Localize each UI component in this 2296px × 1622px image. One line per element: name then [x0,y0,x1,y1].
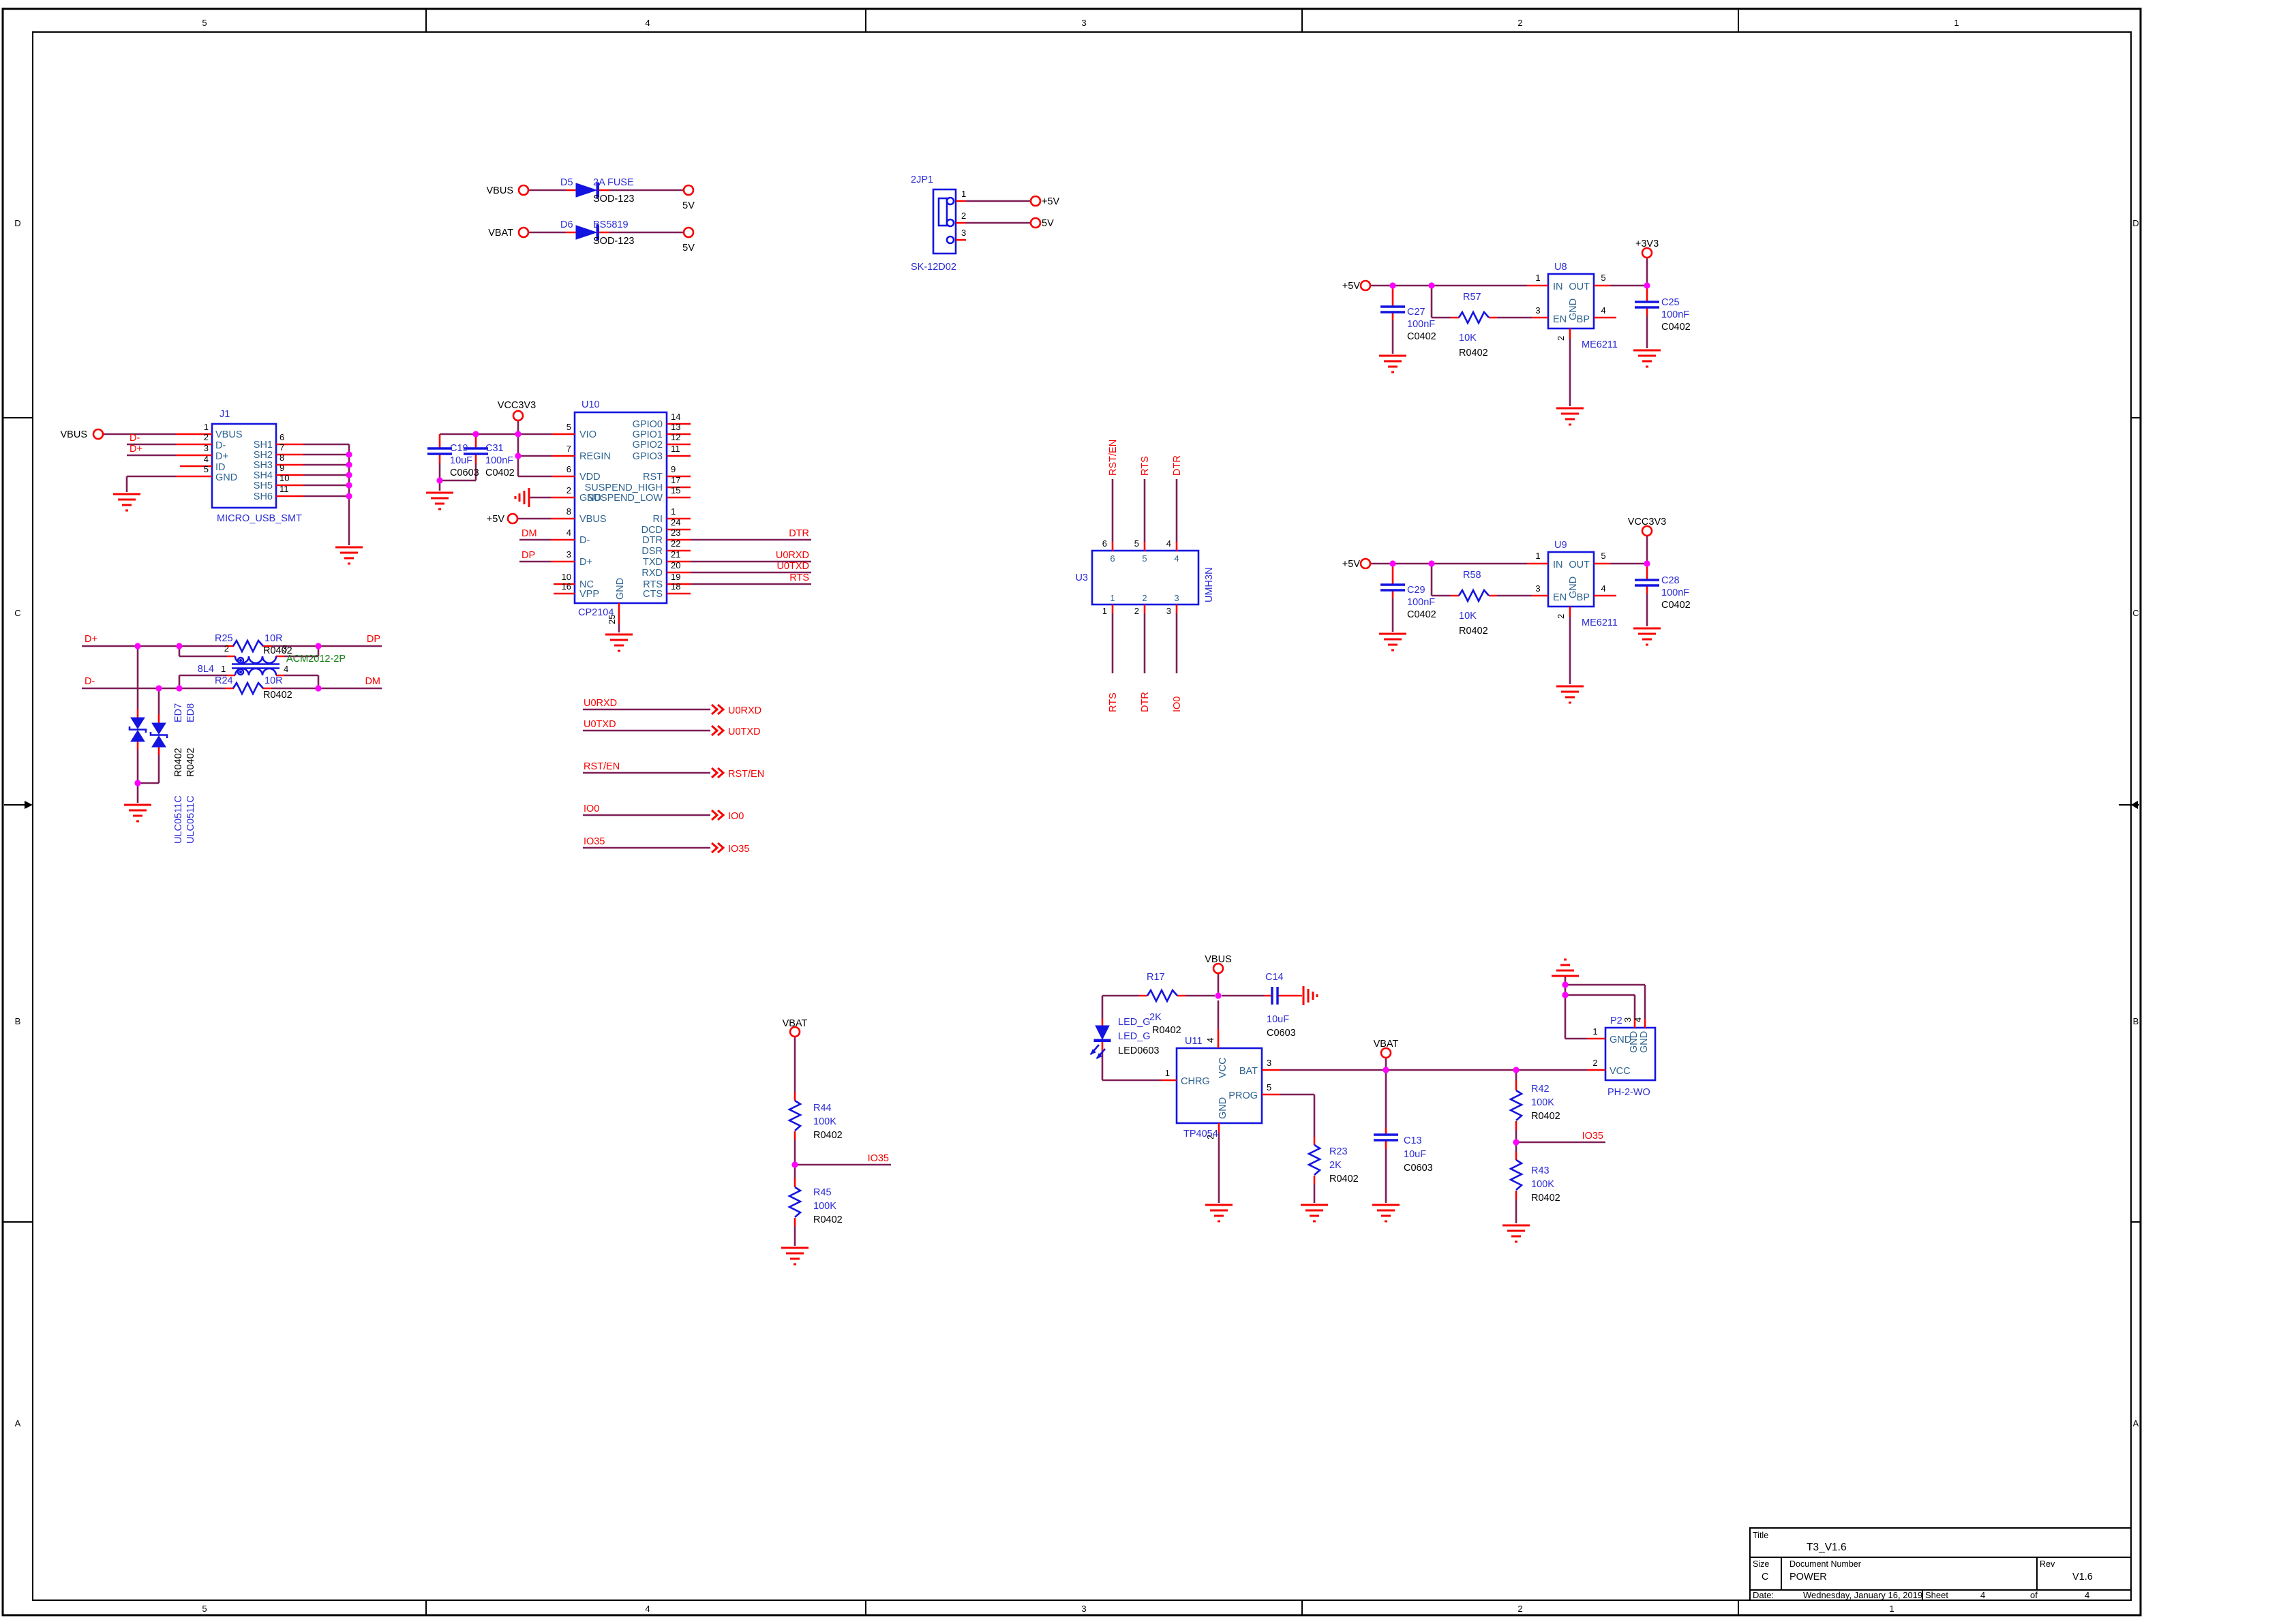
u10-pin-name: SUSPEND_LOW [587,493,663,504]
zone-A-right: A [2133,1418,2139,1428]
r42-footprint: R0402 [1531,1111,1560,1122]
u3-value: UMH3N [1204,567,1215,602]
led-footprint: LED0603 [1118,1045,1159,1056]
r23-value: 2K [1329,1160,1342,1171]
u11-pin-num: 4 [1205,1038,1215,1043]
u10-pin-name: GPIO3 [633,451,663,462]
u9-pin-num: 2 [1556,614,1566,619]
p2-pin-name: VCC [1610,1066,1631,1077]
u10-pin-num: 3 [567,549,571,560]
u8-ref: U8 [1554,262,1567,273]
u10-pin-num: 22 [671,538,680,549]
u11-pin-num: 1 [1165,1068,1170,1078]
schematic-sheet: 5 4 3 2 1 5 4 3 2 1 D C B A D C B A Titl… [0,0,2296,1622]
u10-pin-num: 10 [562,572,571,582]
zone-1-top: 1 [1954,18,1959,28]
j1-pin-name: SH4 [254,470,273,481]
p2-pin-num: 1 [1592,1026,1597,1037]
u10-pin-name: SUSPEND_HIGH [585,483,663,493]
u10-pin-name: REGIN [579,451,611,462]
r43-value: 100K [1531,1179,1554,1190]
u3-pin-num: 6 [1102,538,1107,549]
ed8-footprint: R0402 [185,748,196,777]
u9-pin-num: 3 [1535,583,1540,594]
offpage-rsten: RST/EN [728,769,764,780]
c14-footprint: C0603 [1267,1028,1296,1039]
u10-pin-name: VIO [579,429,596,440]
j1-pin-name: SH6 [254,491,273,502]
u9-pin-name: IN [1553,560,1563,570]
port-3v3-u8: +3V3 [1635,239,1659,249]
u11-pin-name: PROG [1228,1090,1258,1101]
net-u0rxd-l: U0RXD [584,698,617,709]
r44-ref: R44 [813,1103,832,1114]
u10-pin-num: 24 [671,517,680,527]
component-u10: VCC3V3 +5V U10 CP2104 C19 10uF C0603 C31… [426,399,811,651]
net-io35-r42: IO35 [1582,1131,1603,1142]
title-block: Title T3_V1.6 Size C Document Number POW… [1750,1528,2131,1600]
ed8-value: ULC0511C [185,795,196,844]
u3-pin-num-in: 5 [1142,553,1147,564]
u10-pin-name: TXD [643,557,663,568]
offpage-io0: IO0 [728,811,744,822]
u10-pin-num: 15 [671,485,680,495]
date-value: Wednesday, January 16, 2019 [1803,1590,1922,1600]
r17-value: 2K [1149,1012,1162,1023]
size-label: Size [1753,1559,1769,1569]
sheet-total: 4 [2085,1590,2089,1600]
d6-footprint: SOD-123 [593,236,634,247]
u10-pin-num: 9 [671,464,676,474]
j1-pin-num: 6 [280,432,284,442]
r23-ref: R23 [1329,1146,1348,1157]
l4-pin1: 1 [221,664,226,674]
c29-ref: C29 [1407,585,1425,596]
component-j1: VBUS D- D+ J1 MICRO_USB_SMT 1 2 3 4 5 VB… [61,409,363,564]
u10-pin-num: 13 [671,422,680,432]
net-rts-u3b: RTS [1108,692,1119,712]
u11-pin-num: 3 [1267,1058,1271,1068]
zone-C-right: C [2132,608,2139,618]
j1-pin-name: D- [215,440,226,451]
net-dtr-u3b: DTR [1140,692,1151,712]
r42-ref: R42 [1531,1084,1550,1095]
u8-pin-num: 1 [1535,273,1540,283]
u10-pin-name: DTR [642,535,663,546]
zone-B-left: B [15,1016,21,1026]
u10-pin-name: D+ [579,557,592,568]
u10-pin-num: 4 [567,527,571,538]
r17-footprint: R0402 [1152,1025,1181,1036]
u11-pin-name: GND [1218,1097,1228,1119]
d6-value: BS5819 [593,219,629,230]
u8-pin-name: GND [1568,299,1579,320]
zone-5-bot: 5 [202,1604,207,1614]
r57-ref: R57 [1463,292,1481,303]
port-vcc3v3-u10: VCC3V3 [498,400,536,411]
u10-ref: U10 [581,399,600,410]
u10-pin-name: VDD [579,472,601,483]
date-label: Date: [1753,1590,1774,1600]
led-value: LED_G [1118,1031,1151,1042]
r24-ref: R24 [215,675,233,686]
u11-pin-name: BAT [1239,1066,1258,1077]
u10-pin-name: DSR [641,546,663,557]
j1-pin-name: SH2 [254,450,273,461]
c27-ref: C27 [1407,307,1425,318]
c25-ref: C25 [1661,297,1680,308]
led-ref: LED_G [1118,1017,1151,1028]
u10-pin-num: 8 [567,506,571,517]
offpage-connectors: U0RXD U0RXD U0TXD U0TXD RST/EN RST/EN IO… [583,698,764,855]
l4-ref: 8L4 [198,664,214,675]
u3-pin-num: 3 [1166,606,1171,616]
port-5v-jp1: 5V [1042,218,1054,229]
c13-ref: C13 [1404,1135,1422,1146]
net-rts-u3t: RTS [1140,456,1151,476]
l4-pin3: 3 [282,643,287,654]
j1-pin-num: 8 [280,453,284,463]
component-jp1: 2JP1 SK-12D02 1 2 3 +5V 5V [911,174,1060,273]
net-rts-u10: RTS [789,572,809,583]
ed7-ref: ED7 [173,703,184,722]
r57-value: 10K [1459,333,1477,343]
p2-ref: P2 [1610,1015,1622,1026]
u9-pin-name: OUT [1569,560,1590,570]
net-dminus-filter: D- [85,676,95,687]
c27-footprint: C0402 [1407,331,1436,342]
port-p5v-u9: +5V [1342,559,1361,570]
u9-pin-num: 4 [1601,583,1605,594]
u8-value: ME6211 [1582,339,1618,350]
ed8-ref: ED8 [185,703,196,722]
net-dm-u10: DM [522,528,537,539]
p2-pin-name: GND [1629,1031,1640,1053]
u10-pin-num: 12 [671,432,680,442]
jp1-ref: 2JP1 [911,174,933,185]
r45-footprint: R0402 [813,1214,843,1225]
zone-3-bot: 3 [1081,1604,1086,1614]
zone-3-top: 3 [1081,18,1086,28]
c31-ref: C31 [485,443,504,454]
net-rsten-u3: RST/EN [1108,440,1119,476]
u10-pin-num-25: 25 [607,615,617,624]
u10-pin-name: RST [643,472,663,483]
zone-B-right: B [2133,1016,2139,1026]
port-5v-d5: 5V [682,200,695,211]
r17-ref: R17 [1147,972,1165,983]
r43-footprint: R0402 [1531,1193,1560,1204]
u3-pin-num-in: 4 [1174,553,1179,564]
net-dtr-u3t: DTR [1172,455,1183,476]
u10-pin-num: 23 [671,527,680,538]
j1-ref: J1 [220,409,230,420]
net-dtr-u10: DTR [789,528,809,539]
jp1-pin1: 1 [961,189,966,199]
r44-footprint: R0402 [813,1130,843,1141]
p2-pin-name: GND [1639,1031,1650,1053]
r45-ref: R45 [813,1187,832,1198]
rev-label: Rev [2040,1559,2055,1569]
u3-pin-num-in: 6 [1110,553,1115,564]
ed7-value: ULC0511C [173,795,184,844]
u8-pin-name: IN [1553,281,1563,292]
zone-4-bot: 4 [645,1604,650,1614]
regulator-u8: +5V +3V3 U8 ME6211 IN OUT EN BP GND 1 5 … [1342,239,1691,425]
port-vbat: VBAT [488,228,513,239]
p2-pin-num: 4 [1633,1017,1643,1022]
d6-ref: D6 [560,219,573,230]
u10-pin-num: 7 [567,444,571,454]
u9-ref: U9 [1554,540,1567,551]
u10-pin-num: 11 [671,444,680,454]
schematic-canvas: 5 4 3 2 1 5 4 3 2 1 D C B A D C B A Titl… [0,0,2296,1622]
u10-pin-num: 20 [671,560,680,570]
c28-ref: C28 [1661,575,1680,586]
r25-value: 10R [265,633,283,644]
l4-value: ACM2012-2P [286,654,346,664]
p2-pin-num: 2 [1592,1058,1597,1068]
net-io35-l: IO35 [584,836,605,847]
u10-pin-name: RI [653,514,663,525]
u8-pin-num: 4 [1601,305,1605,316]
offpage-io35: IO35 [728,844,749,855]
u10-pin-name: VBUS [579,514,607,525]
u9-value: ME6211 [1582,617,1618,628]
u8-pin-num: 5 [1601,273,1605,283]
sheet-page: 4 [1980,1590,1985,1600]
u9-pin-num: 1 [1535,551,1540,561]
port-vbus-j1: VBUS [61,429,88,440]
r58-value: 10K [1459,611,1477,622]
title-label: Title [1753,1531,1768,1540]
doc-value: POWER [1789,1572,1827,1582]
j1-value: MICRO_USB_SMT [217,513,302,524]
c13-value: 10uF [1404,1149,1426,1160]
p2-value: PH-2-WO [1607,1087,1650,1098]
jp1-value: SK-12D02 [911,262,956,273]
net-u0txd-u10: U0TXD [776,561,809,572]
net-io35-r44: IO35 [868,1153,889,1164]
port-p5v-u8: +5V [1342,281,1361,292]
r42-value: 100K [1531,1097,1554,1108]
u11-pin-name: CHRG [1181,1076,1210,1087]
u3-pin-num: 2 [1134,606,1139,616]
usb-filter: D+ D- DP DM R25 10R R0402 R24 10R R0402 … [82,633,382,844]
zone-A-left: A [15,1418,21,1428]
r23-footprint: R0402 [1329,1174,1359,1184]
c25-footprint: C0402 [1661,322,1691,333]
net-dminus-j1: D- [130,433,140,444]
title-value: T3_V1.6 [1807,1542,1847,1553]
u10-pin-name-gnd: GND [615,578,626,600]
u10-pin-num: 18 [671,581,680,592]
p2-pin-num: 3 [1622,1017,1633,1022]
zone-2-bot: 2 [1517,1604,1522,1614]
u10-pin-name: CTS [643,589,663,600]
c19-footprint: C0603 [450,468,479,478]
j1-pin-name: D+ [215,451,228,462]
offpage-u0txd: U0TXD [728,726,761,737]
j1-pin-num: 10 [280,473,289,483]
size-value: C [1762,1572,1768,1582]
net-u0txd-l: U0TXD [584,719,616,730]
r57-footprint: R0402 [1459,348,1488,358]
sheet-label: Sheet [1925,1590,1948,1600]
j1-pin-name: GND [215,472,237,483]
u10-pin-name: GPIO2 [633,440,663,450]
jp1-pin3: 3 [961,228,966,238]
net-dplus-j1: D+ [130,444,142,455]
r43-ref: R43 [1531,1165,1550,1176]
port-p5v-jp1: +5V [1042,196,1060,207]
u10-pin-num: 17 [671,475,680,485]
port-vbus: VBUS [487,185,514,196]
net-dm-filter: DM [365,676,380,687]
j1-pin-name: SH5 [254,480,273,491]
net-dplus-filter: D+ [85,634,97,645]
zone-4-top: 4 [645,18,650,28]
u3-pin-num-in: 1 [1110,593,1115,603]
c27-value: 100nF [1407,319,1435,330]
j1-pin-num: 7 [280,442,284,453]
d5-footprint: SOD-123 [593,194,634,204]
c28-value: 100nF [1661,587,1689,598]
net-dp-filter: DP [367,634,380,645]
port-vbat-chg: VBAT [1374,1039,1399,1050]
net-io0-l: IO0 [584,804,599,814]
sheet-border: 5 4 3 2 1 5 4 3 2 1 D C B A D C B A [3,9,2141,1615]
u10-pin-num: 5 [567,422,571,432]
c25-value: 100nF [1661,309,1689,320]
u10-pin-num: 16 [562,581,571,592]
c19-value: 10uF [450,455,472,466]
net-u0rxd-u10: U0RXD [776,550,809,561]
j1-pin-name: SH3 [254,460,273,471]
jp1-pin2: 2 [961,211,966,221]
c31-footprint: C0402 [485,468,515,478]
u10-pin-name: VPP [579,589,599,600]
zone-D-left: D [14,218,20,228]
u9-pin-name: EN [1553,592,1567,603]
zone-5-top: 5 [202,18,207,28]
u10-pin-name: GPIO1 [633,429,663,440]
u10-pin-name: D- [579,535,590,546]
u3-pin-num: 4 [1166,538,1171,549]
j1-pin-num: 3 [204,443,209,453]
u10-pin-name: GPIO0 [633,419,663,430]
zone-D-right: D [2132,218,2139,228]
net-dp-u10: DP [522,550,535,561]
net-io0-u3: IO0 [1172,697,1183,712]
r45-value: 100K [813,1201,836,1212]
j1-pin-num: 11 [280,484,289,494]
l4-pin4: 4 [284,664,288,674]
u10-pin-num: 14 [671,412,680,422]
charger-circuit: VBUS VBAT VBAT R17 2K R0402 LED_G LED_G … [781,954,1655,1264]
port-p5v-u10: +5V [487,514,505,525]
u11-pin-num: 5 [1267,1082,1271,1092]
component-u3: U3 UMH3N RST/EN RTS DTR RTS DTR IO0 6 5 … [1075,440,1215,712]
u10-pin-num: 2 [567,485,571,495]
r58-footprint: R0402 [1459,626,1488,637]
zone-2-top: 2 [1517,18,1522,28]
u9-pin-name: GND [1568,577,1579,598]
u3-pin-num: 1 [1102,606,1107,616]
r24-footprint: R0402 [263,690,292,701]
u8-pin-num: 3 [1535,305,1540,316]
c28-footprint: C0402 [1661,600,1691,611]
r25-ref: R25 [215,633,233,644]
u9-pin-num: 5 [1601,551,1605,561]
doc-label: Document Number [1789,1559,1861,1569]
r24-value: 10R [265,675,283,686]
j1-pin-name: SH1 [254,440,273,450]
d5-value: 2A FUSE [593,177,634,188]
port-vbat-div: VBAT [783,1018,808,1029]
c14-value: 10uF [1267,1014,1289,1025]
c29-footprint: C0402 [1407,609,1436,620]
u11-pin-name: VCC [1218,1057,1228,1078]
l4-pin2: 2 [224,643,229,654]
u3-pin-num: 5 [1134,538,1139,549]
u10-pin-num: 21 [671,549,680,560]
u10-pin-num: 1 [671,506,676,517]
j1-pin-name: ID [215,462,226,473]
port-5v-d6: 5V [682,243,695,254]
r58-ref: R58 [1463,570,1481,581]
u10-pin-name: RXD [641,568,663,579]
u10-pin-num: 6 [567,464,571,474]
c13-footprint: C0603 [1404,1163,1433,1174]
net-rsten-l: RST/EN [584,761,620,772]
u3-pin-num-in: 2 [1142,593,1147,603]
c31-value: 100nF [485,455,513,466]
j1-pin-name: VBUS [215,429,243,440]
c14-ref: C14 [1265,972,1284,983]
c19-ref: C19 [450,443,468,454]
u8-pin-name: EN [1553,314,1567,325]
ed7-footprint: R0402 [173,748,184,777]
j1-pin-num: 4 [204,454,209,464]
led-green [1091,1026,1111,1058]
u8-pin-num: 2 [1556,336,1566,341]
j1-pin-num: 9 [280,463,284,473]
port-vcc3v3-u9: VCC3V3 [1628,517,1666,527]
rev-value: V1.6 [2072,1572,2093,1582]
d5-ref: D5 [560,177,573,188]
r44-value: 100K [813,1116,836,1127]
offpage-u0rxd: U0RXD [728,705,761,716]
port-vbus-chg: VBUS [1205,954,1232,965]
j1-pin-num: 5 [204,464,209,474]
u3-pin-num-in: 3 [1174,593,1179,603]
regulator-u9: +5V VCC3V3 U9 ME6211 IN OUT EN BP GND 1 … [1342,517,1691,703]
component-d5-d6: VBUS VBAT 5V 5V D5 2A FUSE SOD-123 D6 BS… [487,177,695,254]
c29-value: 100nF [1407,597,1435,608]
u10-pin-name: DCD [641,525,663,536]
u8-pin-name: OUT [1569,281,1590,292]
zone-C-left: C [14,608,20,618]
sheet-of-label: of [2030,1590,2038,1600]
zone-1-bot: 1 [1889,1604,1894,1614]
j1-pin-num: 1 [204,422,209,432]
u11-pin-num: 2 [1205,1135,1215,1139]
u11-ref: U11 [1185,1036,1203,1047]
u3-ref: U3 [1075,572,1088,583]
u10-pin-num: 19 [671,572,680,582]
j1-pin-num: 2 [204,432,209,442]
